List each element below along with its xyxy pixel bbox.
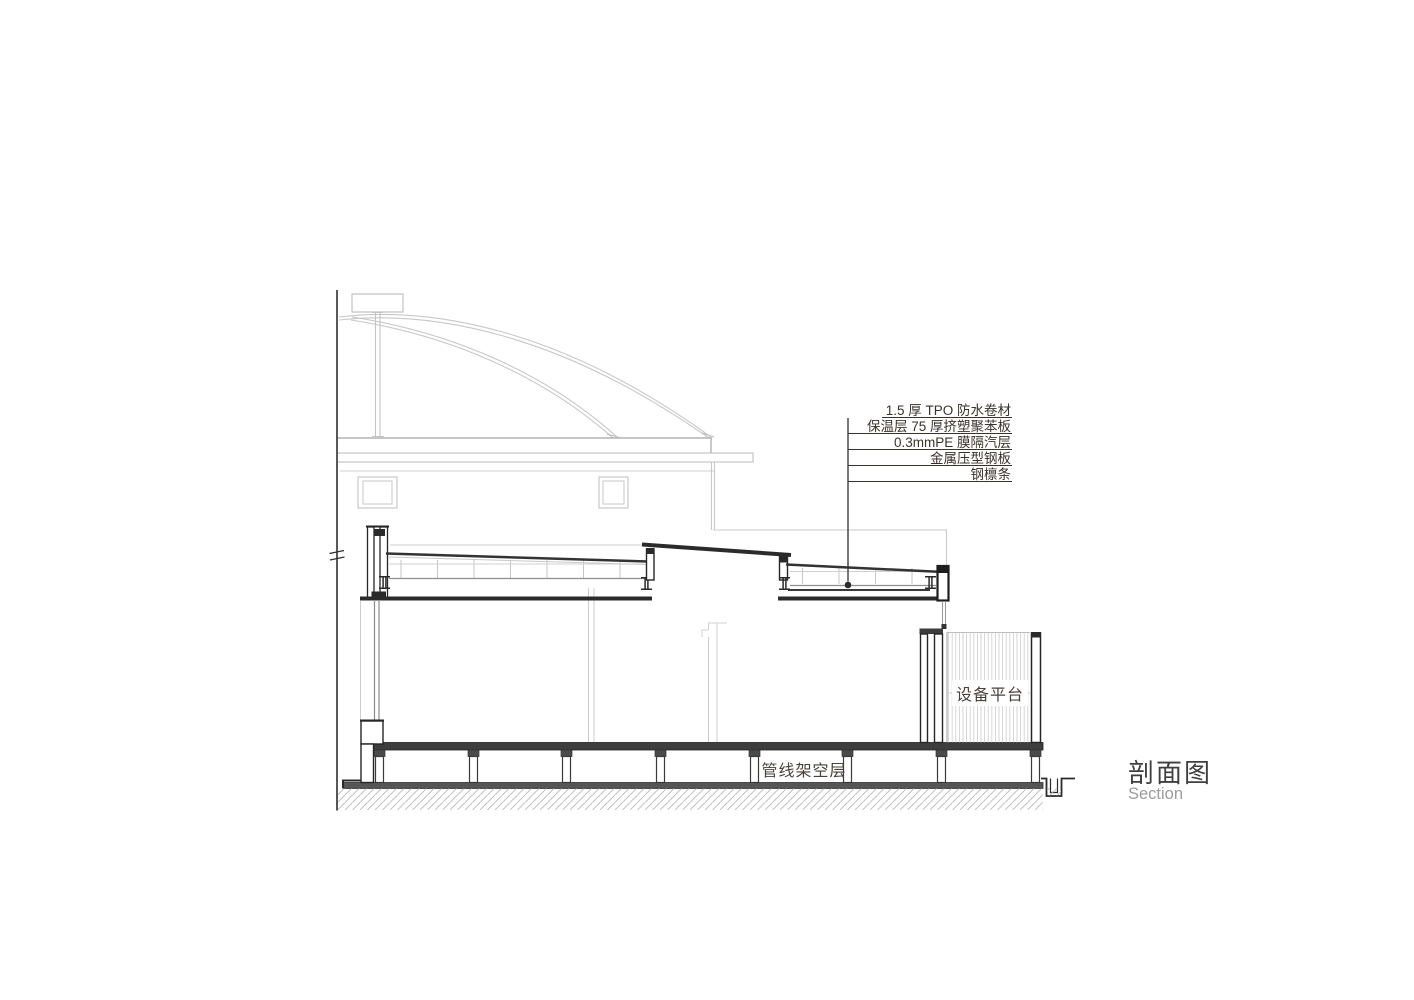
roof-assembly-annotation: 1.5 厚 TPO 防水卷材 保温层 75 厚挤塑聚苯板 0.3mmPE 膜隔汽…	[848, 402, 1012, 482]
annotation-row: 1.5 厚 TPO 防水卷材	[882, 402, 1012, 418]
section-linework	[0, 0, 1414, 1000]
right-roof-deck	[778, 565, 949, 601]
annotation-row: 保温层 75 厚挤塑聚苯板	[848, 418, 1012, 434]
annotation-row: 0.3mmPE 膜隔汽层	[848, 434, 1012, 450]
clerestory-monitor	[642, 545, 791, 581]
left-roof-deck	[360, 554, 652, 599]
equipment-platform-label: 设备平台	[952, 680, 1028, 706]
drawing-title-en: Section	[1128, 785, 1183, 804]
annotation-row: 钢檩条	[848, 466, 1012, 482]
pipeline-plenum-label: 管线架空层	[761, 757, 846, 781]
section-drawing-canvas: 1.5 厚 TPO 防水卷材 保温层 75 厚挤塑聚苯板 0.3mmPE 膜隔汽…	[0, 0, 1414, 1000]
annotation-row: 金属压型钢板	[848, 450, 1012, 466]
equipment-platform	[920, 601, 1042, 743]
section-cut-line	[330, 290, 345, 811]
floor-structure	[336, 743, 1075, 811]
